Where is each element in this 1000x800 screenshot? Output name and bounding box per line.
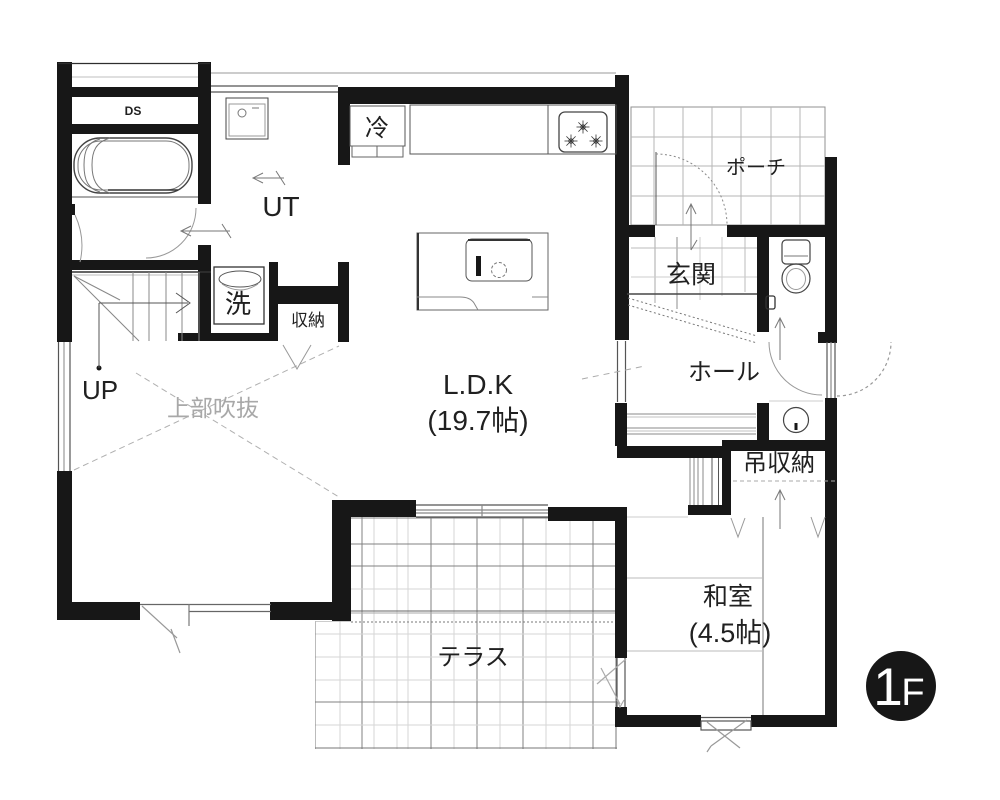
svg-text:1: 1 [873,658,902,717]
svg-text:UP: UP [82,375,118,405]
svg-text:L.D.K: L.D.K [443,369,513,400]
svg-text:UT: UT [262,191,299,222]
svg-text:ホール: ホール [688,359,760,386]
svg-text:ポーチ: ポーチ [726,156,786,179]
svg-text:テラス: テラス [437,644,509,671]
svg-text:(4.5帖): (4.5帖) [689,618,772,648]
svg-text:洗: 洗 [225,289,251,319]
svg-text:上部吹抜: 上部吹抜 [167,395,259,421]
svg-text:玄関: 玄関 [666,261,716,289]
svg-text:F: F [901,672,924,714]
svg-text:DS: DS [125,104,142,118]
svg-text:冷: 冷 [365,115,389,142]
svg-text:(19.7帖): (19.7帖) [427,405,528,436]
svg-text:収納: 収納 [291,311,325,330]
svg-text:吊収納: 吊収納 [743,450,815,477]
svg-text:和室: 和室 [703,583,753,611]
